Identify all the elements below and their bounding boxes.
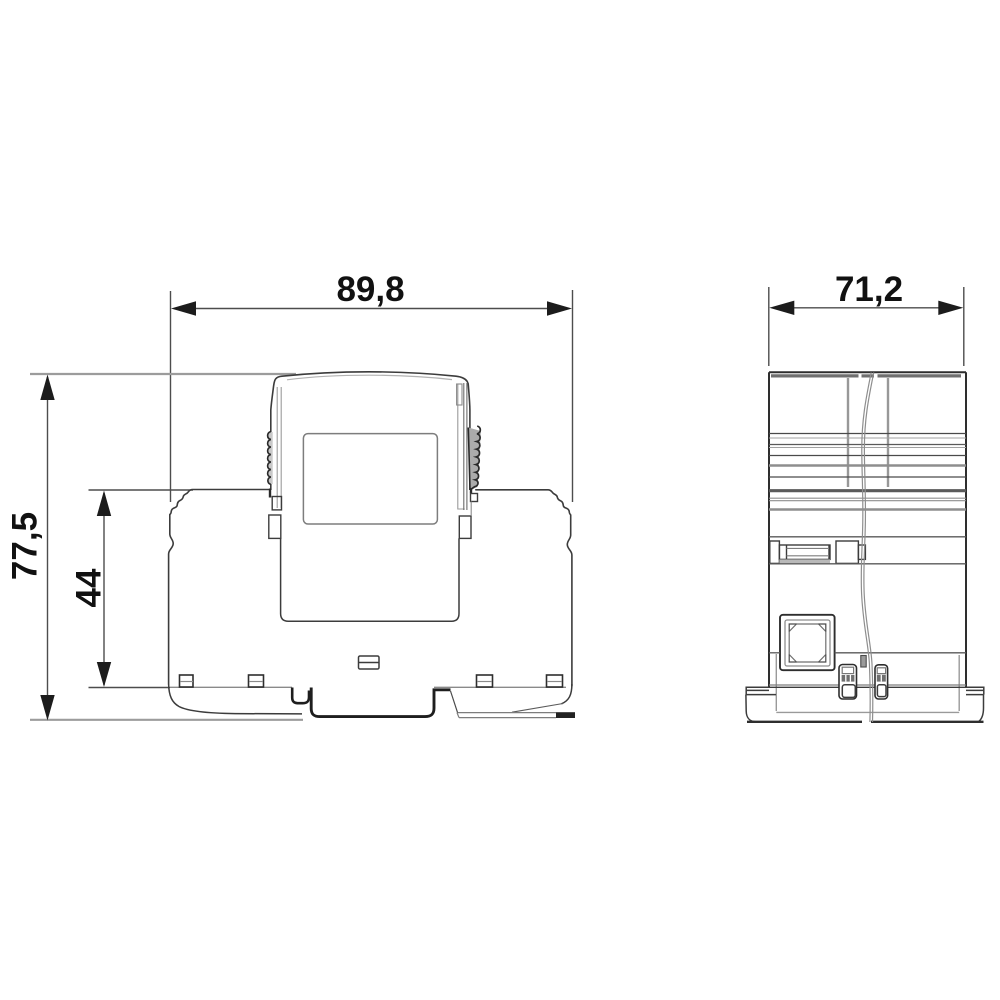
svg-text:71,2: 71,2	[835, 270, 903, 309]
svg-text:44: 44	[70, 568, 109, 607]
svg-text:77,5: 77,5	[6, 512, 45, 580]
svg-text:89,8: 89,8	[336, 270, 404, 309]
